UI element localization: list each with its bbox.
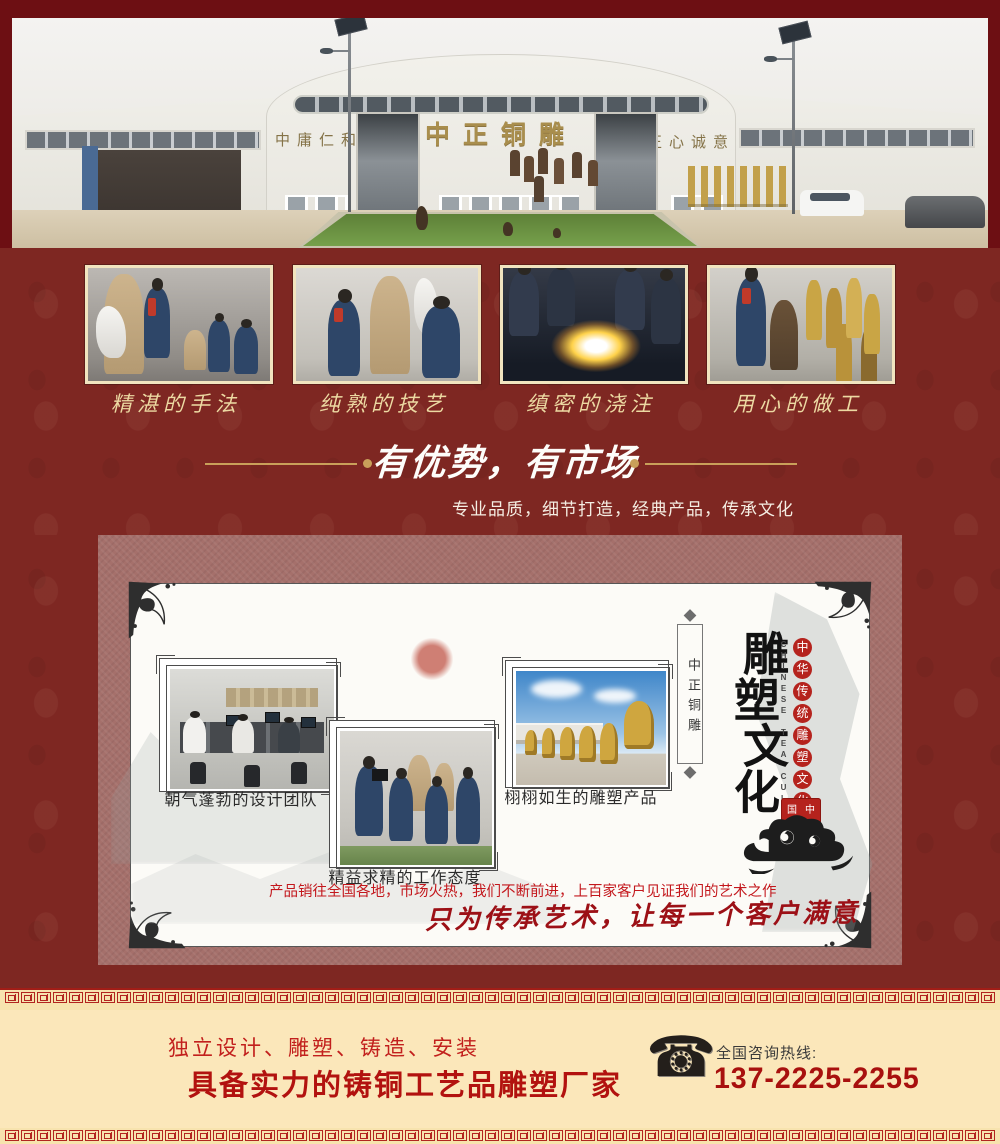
meander-tile [277, 1130, 291, 1141]
clay-bust [370, 276, 410, 374]
meander-tile [101, 992, 115, 1003]
meander-tile [181, 1130, 195, 1141]
char: 统 [793, 704, 812, 723]
solar-panel [778, 21, 811, 45]
meander-tile [949, 1130, 963, 1141]
meander-tile [37, 1130, 51, 1141]
meander-tile [981, 992, 995, 1003]
meander-tile [501, 992, 515, 1003]
meander-tile [405, 992, 419, 1003]
cloud [594, 689, 636, 703]
meander-tile [53, 992, 67, 1003]
solar-light-pole [348, 24, 351, 212]
process-photo-modeling [293, 265, 481, 384]
solar-panel [334, 18, 367, 36]
card-caption-design-team: 朝气蓬勃的设计团队 [149, 786, 333, 810]
buddha-statue [624, 701, 654, 749]
meander-tile [485, 1130, 499, 1141]
meander-tile [341, 992, 355, 1003]
buddha-statue [542, 728, 556, 758]
meander-tile [261, 1130, 275, 1141]
advantage-subtitle: 专业品质，细节打造，经典产品，传承文化 [452, 495, 738, 520]
card-caption-products: 栩栩如生的雕塑产品 [495, 784, 667, 808]
meander-tile [69, 1130, 83, 1141]
meander-tile [677, 992, 691, 1003]
meander-tile [213, 1130, 227, 1141]
casting-fire-glow [536, 311, 656, 381]
green-floor-mat [340, 846, 492, 865]
process-caption-1: 精湛的手法 [82, 388, 270, 418]
buddha-statue [600, 723, 618, 764]
meander-tile [741, 992, 755, 1003]
meander-tile [725, 992, 739, 1003]
process-caption-4: 用心的做工 [704, 388, 892, 418]
golden-statue-row [688, 166, 788, 207]
clerestory-windows [293, 95, 709, 114]
office-chair [190, 762, 206, 784]
meander-tile [981, 1130, 995, 1141]
camera-operator [355, 766, 382, 836]
meander-tile [773, 1130, 787, 1141]
process-section: 精湛的手法 纯熟的技艺 缜密的浇注 用心的做工 有优势，有市场 专业品质，细节打… [0, 248, 1000, 535]
meander-tile [53, 1130, 67, 1141]
meander-tile [149, 992, 163, 1003]
meander-tile [853, 992, 867, 1003]
meander-tile [421, 1130, 435, 1141]
meander-tile [965, 992, 979, 1003]
process-photo-sculpting [85, 265, 273, 384]
meander-tile [805, 992, 819, 1003]
office-chair [291, 762, 307, 784]
meander-tile [245, 992, 259, 1003]
meander-tile [901, 1130, 915, 1141]
title-dot-right [630, 459, 639, 468]
meander-tile [85, 1130, 99, 1141]
meander-tile [117, 992, 131, 1003]
process-photo-casting [500, 265, 688, 384]
corner-flourish-icon [127, 580, 189, 642]
services-line: 独立设计、雕塑、铸造、安装 [168, 1032, 480, 1062]
meander-tile [21, 992, 35, 1003]
meander-tile [277, 992, 291, 1003]
meander-tile [437, 1130, 451, 1141]
meander-tile [325, 992, 339, 1003]
meander-tile [549, 992, 563, 1003]
meander-tile [693, 1130, 707, 1141]
culture-section: 朝气蓬勃的设计团队 [0, 535, 1000, 988]
street-lamp [320, 48, 333, 54]
meander-tile [661, 992, 675, 1003]
street-lamp [764, 56, 777, 62]
top-banner-section: 中庸仁和 中正铜雕 正心诚意 [0, 0, 1000, 248]
dark-car [905, 196, 985, 228]
red-vest [148, 298, 156, 316]
design-team-photo [170, 669, 334, 789]
meander-tile [837, 992, 851, 1003]
seal-script-plaque: 中正铜雕 [677, 624, 703, 764]
meander-tile [261, 992, 275, 1003]
meander-tile [613, 1130, 627, 1141]
deer-sculpture [553, 228, 561, 238]
golden-statues [806, 280, 822, 340]
meander-tile [533, 1130, 547, 1141]
worker-figure [425, 785, 448, 844]
meander-tile [565, 1130, 579, 1141]
hotline-phone-number: 137-2225-2255 [714, 1062, 920, 1096]
meander-tile [549, 1130, 563, 1141]
meander-tile [69, 992, 83, 1003]
meander-tile [789, 992, 803, 1003]
meander-tile [389, 1130, 403, 1141]
products-photo-frame [505, 660, 669, 788]
meander-tile [885, 1130, 899, 1141]
meander-tile [37, 992, 51, 1003]
meander-tile [853, 1130, 867, 1141]
char: 传 [793, 682, 812, 701]
bronze-statue-group [510, 150, 520, 176]
meander-tile [469, 1130, 483, 1141]
meander-tile [869, 992, 883, 1003]
worker-figure [456, 777, 480, 844]
meander-tile [517, 1130, 531, 1141]
char: 塑 [728, 676, 779, 722]
meander-tile [597, 1130, 611, 1141]
meander-tile [645, 1130, 659, 1141]
worker-silhouette [509, 272, 539, 336]
center-lawn [298, 212, 702, 248]
factory-panorama-photo: 中庸仁和 中正铜雕 正心诚意 [12, 18, 988, 248]
building-sign-right: 正心诚意 [647, 131, 735, 152]
meander-tile [85, 992, 99, 1003]
meander-tile [453, 992, 467, 1003]
meander-tile [965, 1130, 979, 1141]
meander-tile [917, 1130, 931, 1141]
red-vest [742, 288, 751, 304]
meander-tile [533, 992, 547, 1003]
meander-tile [245, 1130, 259, 1141]
meander-tile [917, 992, 931, 1003]
meander-tile [229, 1130, 243, 1141]
meander-tile [645, 992, 659, 1003]
meander-tile [581, 992, 595, 1003]
hotline-label: 全国咨询热线: [716, 1042, 817, 1063]
meander-tile [389, 992, 403, 1003]
meander-tile [437, 992, 451, 1003]
meander-tile [613, 992, 627, 1003]
meander-tile [805, 1130, 819, 1141]
meander-tile [693, 992, 707, 1003]
meander-tile [213, 992, 227, 1003]
vertical-subtitle-circles: 中华传统雕塑文化 [793, 636, 812, 812]
process-photo-finishing [707, 265, 895, 384]
work-attitude-photo [340, 731, 492, 865]
meander-tile [661, 1130, 675, 1141]
worker-figure [208, 320, 230, 372]
design-team-photo-frame [159, 658, 337, 792]
buddha-statue [560, 727, 575, 760]
photo-inner-frame [336, 727, 496, 869]
meander-tile [709, 992, 723, 1003]
photo-inner-frame [166, 665, 338, 793]
worker-figure [144, 288, 170, 358]
meander-tile [453, 1130, 467, 1141]
meander-border-bottom [0, 1128, 1000, 1144]
meander-tile [309, 1130, 323, 1141]
meander-tile [21, 1130, 35, 1141]
worker-figure [736, 278, 766, 366]
worker-figure [328, 300, 360, 376]
meander-tile [197, 992, 211, 1003]
meander-tile [181, 992, 195, 1003]
char: 文 [793, 770, 812, 789]
title-line-left [205, 463, 357, 465]
meander-tile [581, 1130, 595, 1141]
right-wing-windows [739, 128, 975, 148]
meander-tile [597, 992, 611, 1003]
meander-tile [869, 1130, 883, 1141]
meander-tile [837, 1130, 851, 1141]
buddha-statue [525, 730, 537, 755]
meander-tile [133, 1130, 147, 1141]
worker-figure [234, 326, 258, 374]
monitor [265, 712, 280, 723]
left-wing-windows [25, 130, 261, 150]
red-vest [334, 308, 343, 322]
lawn-grass [303, 214, 697, 246]
meander-tile [293, 1130, 307, 1141]
meander-tile [405, 1130, 419, 1141]
meander-tile [949, 992, 963, 1003]
meander-tile [501, 1130, 515, 1141]
office-cabinet [226, 688, 318, 707]
red-sun-decoration [411, 638, 453, 680]
deer-sculpture [503, 222, 513, 236]
char: 华 [793, 660, 812, 679]
meander-tile [117, 1130, 131, 1141]
products-photo [516, 671, 666, 785]
meander-tile [373, 992, 387, 1003]
title-line-right [645, 463, 797, 465]
deer-sculpture [416, 206, 428, 230]
culture-card: 朝气蓬勃的设计团队 [130, 583, 870, 947]
telephone-icon: ☎ [646, 1030, 716, 1086]
worker-figure [389, 777, 413, 841]
meander-tile [165, 1130, 179, 1141]
meander-tile [821, 992, 835, 1003]
meander-tile [565, 992, 579, 1003]
meander-tile [517, 992, 531, 1003]
office-person [278, 722, 299, 753]
meander-tile [821, 1130, 835, 1141]
brand-slogan: 只为传承艺术，让每一个客户满意 [425, 892, 861, 937]
footer-headline: 具备实力的铸铜工艺品雕塑厂家 [188, 1062, 622, 1104]
meander-tile [373, 1130, 387, 1141]
process-caption-2: 纯熟的技艺 [290, 388, 478, 418]
meander-tile [773, 992, 787, 1003]
meander-tile [325, 1130, 339, 1141]
meander-tile [165, 992, 179, 1003]
office-person [183, 717, 206, 753]
meander-tile [677, 1130, 691, 1141]
building-sign-center: 中正铜雕 [425, 115, 577, 151]
page: 中庸仁和 中正铜雕 正心诚意 [0, 0, 1000, 1144]
meander-tile [469, 992, 483, 1003]
meander-tile [421, 992, 435, 1003]
meander-tile [133, 992, 147, 1003]
meander-tile [933, 1130, 947, 1141]
photo-inner-frame [512, 667, 670, 789]
meander-tile [741, 1130, 755, 1141]
meander-tile [725, 1130, 739, 1141]
meander-border-top [0, 988, 1000, 1010]
meander-tile [789, 1130, 803, 1141]
clay-statue [184, 330, 206, 370]
meander-tile [5, 992, 19, 1003]
meander-tile [341, 1130, 355, 1141]
office-chair [244, 765, 260, 787]
mauve-panel: 朝气蓬勃的设计团队 [98, 535, 902, 965]
advantage-title: 有优势，有市场 [370, 434, 626, 486]
meander-tile [357, 1130, 371, 1141]
office-person [232, 719, 253, 753]
cloud-ornament-icon [739, 808, 859, 874]
meander-tile [293, 992, 307, 1003]
footer-section: 独立设计、雕塑、铸造、安装 具备实力的铸铜工艺品雕塑厂家 ☎ 全国咨询热线: 1… [0, 1010, 1000, 1128]
meander-tile [5, 1130, 19, 1141]
meander-tile [709, 1130, 723, 1141]
buddha-statue [579, 726, 596, 762]
meander-tile [901, 992, 915, 1003]
meander-tile [485, 992, 499, 1003]
meander-tile [149, 1130, 163, 1141]
meander-tile [357, 992, 371, 1003]
worker-figure [422, 306, 460, 378]
bronze-statue [770, 300, 798, 370]
char: 雕 [793, 726, 812, 745]
char: 塑 [793, 748, 812, 767]
white-car [800, 190, 864, 216]
meander-tile [885, 992, 899, 1003]
video-camera [372, 769, 388, 782]
meander-tile [757, 1130, 771, 1141]
meander-tile [933, 992, 947, 1003]
meander-tile [229, 992, 243, 1003]
meander-tile [197, 1130, 211, 1141]
meander-tile [309, 992, 323, 1003]
meander-tile [629, 992, 643, 1003]
work-attitude-photo-frame [329, 720, 495, 868]
char: 中 [793, 638, 812, 657]
meander-tile [101, 1130, 115, 1141]
monitor [301, 717, 316, 728]
meander-tile [629, 1130, 643, 1141]
process-caption-3: 缜密的浇注 [497, 388, 685, 418]
meander-tile [757, 992, 771, 1003]
solar-light-pole [792, 32, 795, 214]
